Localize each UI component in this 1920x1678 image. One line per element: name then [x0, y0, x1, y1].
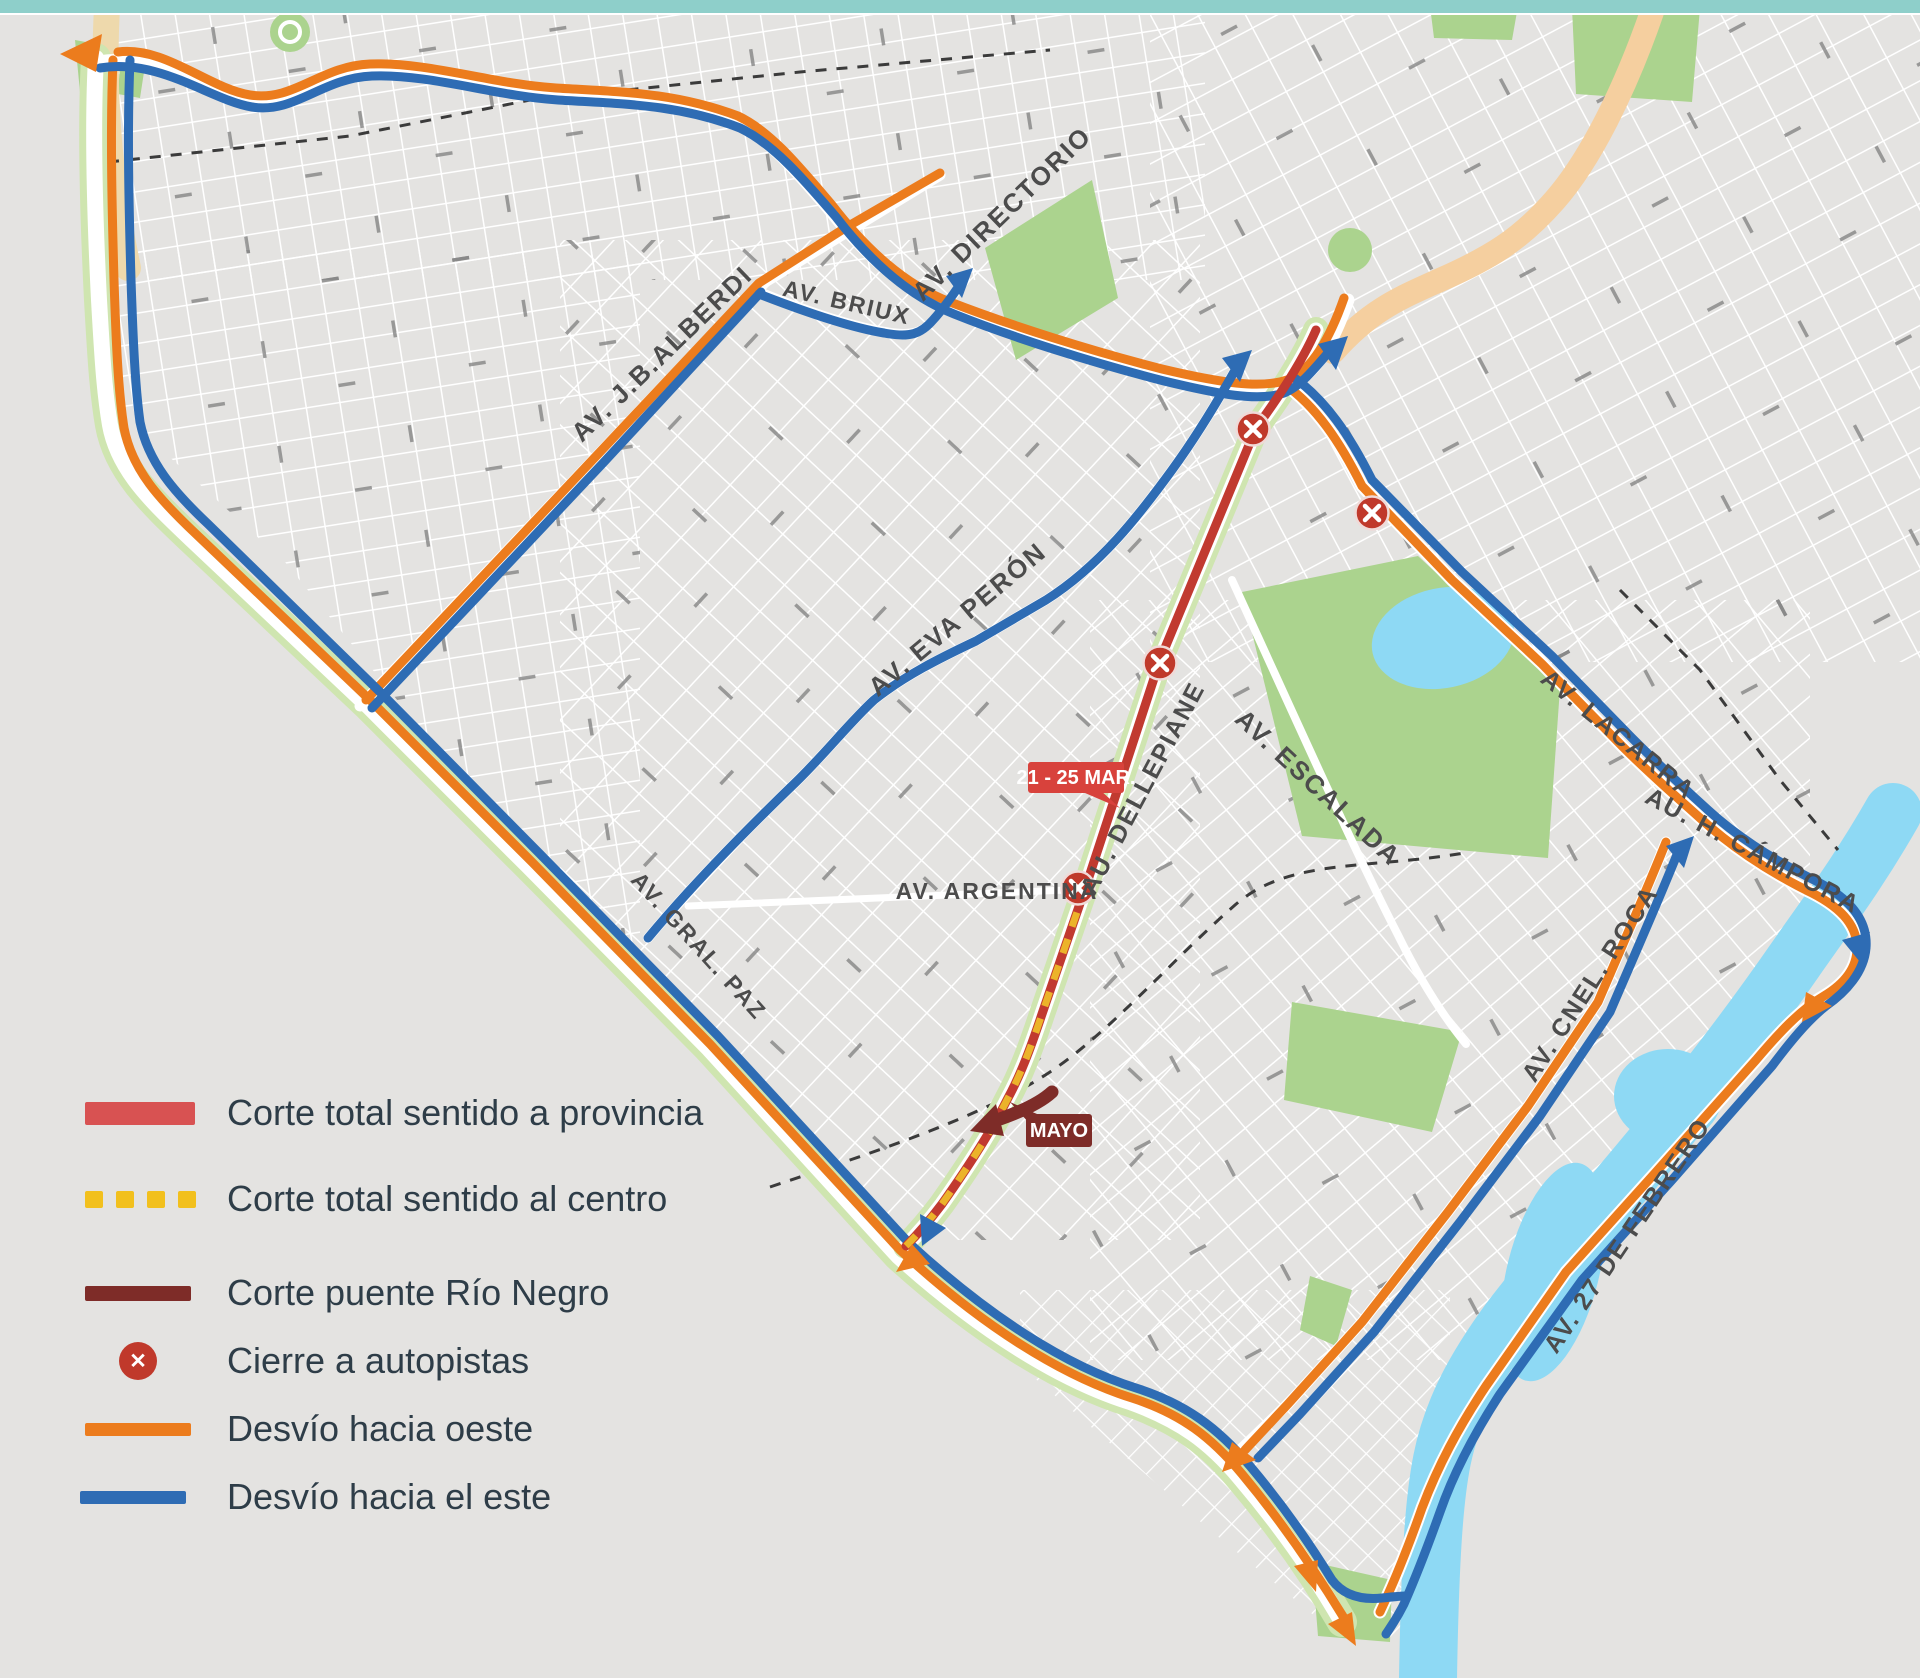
legend-label: Desvío hacia el este: [227, 1476, 551, 1518]
legend-item-closure-province: Corte total sentido a provincia: [85, 1092, 703, 1134]
top-accent-bar: [0, 0, 1920, 13]
legend-label: Corte puente Río Negro: [227, 1272, 609, 1314]
x-circle-icon: [119, 1342, 157, 1380]
date-range-label: 21 - 25 MAR.: [1017, 767, 1136, 789]
red-bar-icon: [85, 1102, 195, 1125]
legend-swatch: [85, 1423, 227, 1436]
legend-label: Cierre a autopistas: [227, 1340, 529, 1382]
street-label: AV. ARGENTINA: [896, 878, 1099, 904]
top-bar-divider: [0, 13, 1920, 15]
legend-swatch: [85, 1491, 227, 1504]
legend-swatch: [85, 1286, 227, 1301]
legend-item-bridge-closure: Corte puente Río Negro: [85, 1272, 609, 1314]
closure-x-icon: [1144, 647, 1177, 680]
legend-label: Desvío hacia oeste: [227, 1408, 533, 1450]
closure-x-icon: [1237, 413, 1270, 446]
legend-item-closure-center: Corte total sentido al centro: [85, 1178, 667, 1220]
legend-swatch: [85, 1342, 227, 1380]
maroon-bar-icon: [85, 1286, 191, 1301]
legend-label: Corte total sentido a provincia: [227, 1092, 703, 1134]
bridge-label: MAYO: [1030, 1120, 1088, 1142]
closure-x-icon: [1356, 497, 1389, 530]
legend-item-highway-closure: Cierre a autopistas: [85, 1340, 529, 1382]
legend-item-detour-east: Desvío hacia el este: [85, 1476, 551, 1518]
blue-bar-icon: [80, 1491, 186, 1504]
legend-swatch: [85, 1191, 227, 1208]
legend-item-detour-west: Desvío hacia oeste: [85, 1408, 533, 1450]
legend-swatch: [85, 1102, 227, 1125]
yellow-dashed-bar-icon: [85, 1191, 196, 1208]
orange-bar-icon: [85, 1423, 191, 1436]
legend-label: Corte total sentido al centro: [227, 1178, 667, 1220]
traffic-closure-map: AV. J.B.ALBERDI AV. BRIUX AV. DIRECTORIO…: [0, 0, 1920, 1678]
